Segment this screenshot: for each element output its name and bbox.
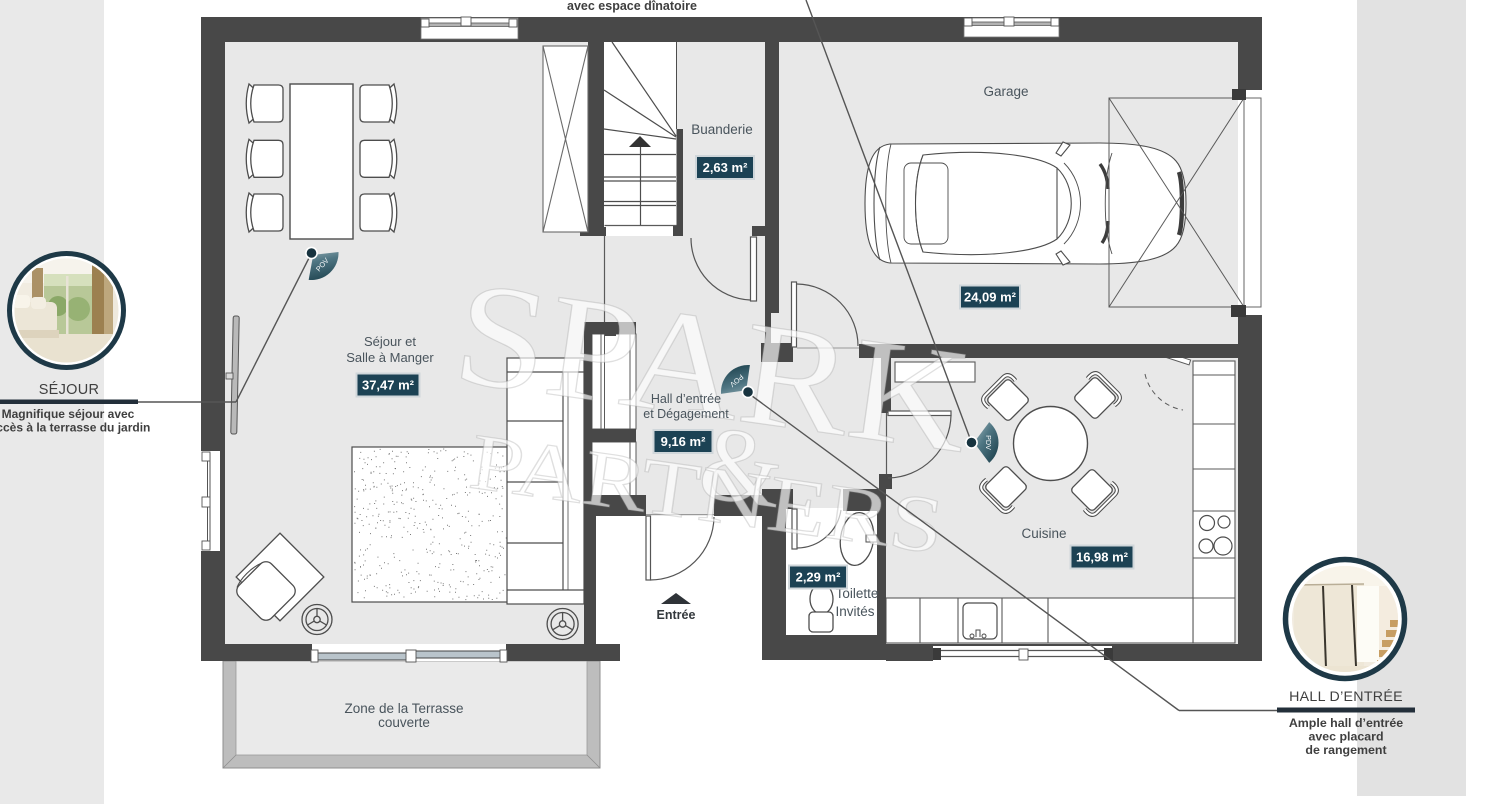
svg-text:Séjour et: Séjour et (364, 334, 416, 349)
svg-text:2,63 m²: 2,63 m² (703, 160, 748, 175)
svg-text:accès à la terrasse du jardin: accès à la terrasse du jardin (0, 421, 150, 435)
svg-text:Zone de la Terrasse: Zone de la Terrasse (344, 701, 463, 716)
svg-text:Cuisine: Cuisine (1021, 526, 1066, 541)
svg-text:SÉJOUR: SÉJOUR (39, 381, 100, 398)
svg-text:37,47 m²: 37,47 m² (362, 378, 415, 393)
svg-text:PDV: PDV (984, 435, 993, 450)
svg-text:2,29 m²: 2,29 m² (796, 570, 841, 585)
svg-text:Entrée: Entrée (657, 608, 696, 622)
svg-text:9,16 m²: 9,16 m² (661, 434, 706, 449)
svg-text:Ample hall d’entrée: Ample hall d’entrée (1289, 716, 1403, 730)
svg-text:avec espace dînatoire: avec espace dînatoire (567, 0, 697, 13)
svg-text:Garage: Garage (983, 84, 1028, 99)
svg-text:Invités: Invités (835, 604, 874, 619)
svg-text:Hall d’entrée: Hall d’entrée (651, 392, 721, 406)
svg-text:16,98 m²: 16,98 m² (1076, 550, 1129, 565)
svg-text:Buanderie: Buanderie (691, 122, 753, 137)
svg-text:Salle à Manger: Salle à Manger (346, 350, 434, 365)
svg-text:et Dégagement: et Dégagement (643, 407, 729, 421)
svg-text:avec placard: avec placard (1308, 730, 1383, 744)
svg-text:HALL D’ENTRÉE: HALL D’ENTRÉE (1289, 688, 1403, 705)
svg-text:Magnifique séjour avec: Magnifique séjour avec (2, 407, 135, 421)
svg-text:couverte: couverte (378, 715, 430, 730)
svg-text:24,09 m²: 24,09 m² (964, 290, 1017, 305)
svg-text:de rangement: de rangement (1305, 743, 1386, 757)
